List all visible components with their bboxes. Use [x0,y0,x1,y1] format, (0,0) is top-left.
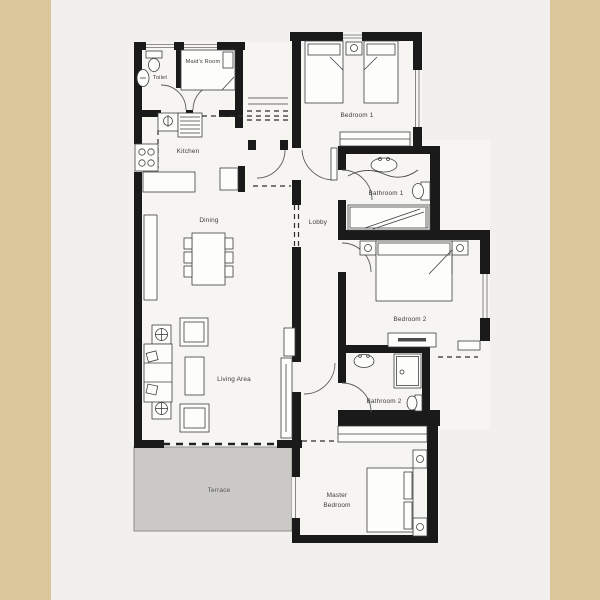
kitchen-counter [143,172,195,192]
kitchen-label: Kitchen [177,148,200,155]
master-bedroom-label-line2: Bedroom [323,502,350,509]
entry-closet [220,168,238,190]
shower [394,354,421,388]
maids-room-label: Maid's Room [186,59,221,65]
bathroom1-label: Bathroom 1 [368,190,403,197]
dining-furniture [184,233,233,285]
terrace-label: Terrace [208,487,231,494]
toilet-label: Toilet [153,75,168,81]
door-leaf [331,148,337,180]
dining-label: Dining [199,217,219,224]
bathtub [348,205,430,230]
master-bedroom-label-line1: Master [327,492,348,499]
lobby-label: Lobby [309,219,328,226]
bathroom2-label: Bathroom 2 [366,398,401,405]
bedroom2-label: Bedroom 2 [393,316,426,323]
coffee-table [185,357,204,395]
sideboard [144,215,157,300]
living-area-label: Living Area [217,376,251,383]
floor-plan-page: Toilet Maid's Room Kitchen Dining Lobby … [0,0,600,600]
tv-console [281,358,292,438]
bedroom1-label: Bedroom 1 [340,112,373,119]
floor-plan-drawing: Toilet Maid's Room Kitchen Dining Lobby … [0,0,600,600]
tv-shelf [284,328,295,356]
maids-room-furniture [181,50,235,90]
stove [135,144,158,171]
